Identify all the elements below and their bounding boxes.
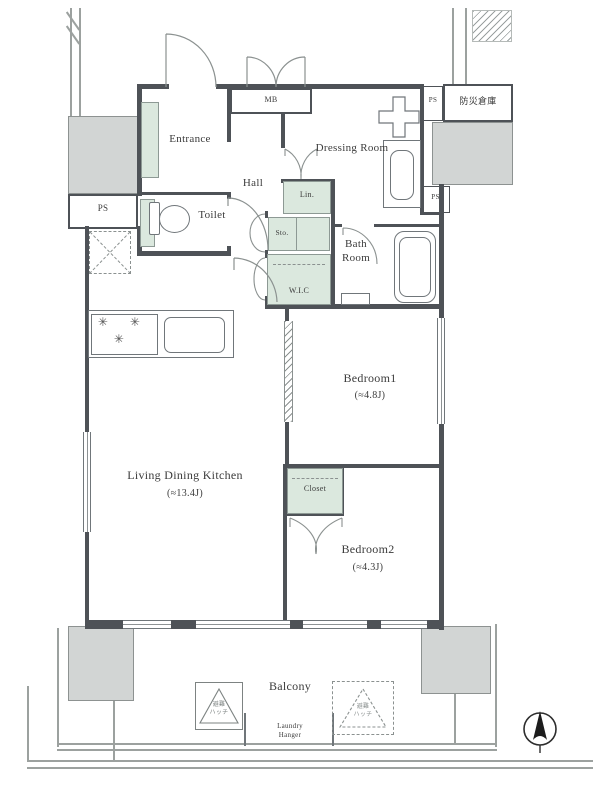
disaster-storage-label: 防災倉庫	[443, 94, 513, 107]
wall	[374, 224, 441, 227]
pillar	[68, 116, 139, 194]
meter-box-label: MB	[230, 95, 312, 104]
pipe-space-label: PS	[421, 193, 450, 201]
laundry-hanger-post	[244, 713, 246, 746]
washing-machine-icon	[390, 150, 414, 200]
wall	[285, 422, 289, 468]
toilet-label: Toilet	[186, 209, 238, 221]
balcony-edge	[495, 624, 497, 747]
entrance-door-arc	[165, 31, 219, 89]
site-boundary	[27, 760, 593, 762]
evacuation-hatch-icon: 避難 ハッチ	[332, 681, 394, 735]
wall-stub	[452, 8, 454, 86]
site-boundary	[27, 767, 593, 769]
window	[381, 620, 427, 629]
ldk-label: Living Dining Kitchen	[103, 468, 267, 483]
window	[83, 432, 91, 532]
balcony-label: Balcony	[248, 679, 332, 694]
bath-room-label: Bath Room	[333, 237, 379, 265]
hanger-rail	[292, 478, 338, 479]
north-arrow-icon	[515, 705, 567, 757]
hanger-rail	[273, 264, 325, 265]
bedroom1-size: (≈4.8J)	[300, 390, 440, 401]
floor-plan: PS PS 防災倉庫 PS MB	[0, 0, 600, 800]
stove-burner-icon: ✳	[128, 315, 142, 330]
wall-stub	[465, 8, 467, 86]
bathtub-icon	[399, 237, 431, 297]
dressing-room-label: Dressing Room	[312, 141, 392, 155]
washbasin-icon	[376, 94, 422, 140]
ldk-door-arc	[232, 256, 278, 302]
hatch-text-line2: ハッチ	[333, 712, 393, 719]
window	[196, 620, 290, 629]
wall-stub	[79, 8, 81, 116]
evacuation-hatch-icon: 避難 ハッチ	[195, 682, 243, 730]
wall-hatch-area	[472, 10, 512, 42]
window	[303, 620, 367, 629]
laundry-hanger-line2: Hanger	[279, 731, 301, 740]
wall	[285, 309, 289, 321]
pipe-space-label: PS	[423, 96, 443, 104]
balcony-rail	[57, 749, 497, 751]
stove-burner-icon: ✳	[96, 315, 110, 330]
balcony-rail	[57, 743, 497, 745]
pipe-space-label: PS	[68, 203, 138, 213]
folding-door-icon	[249, 213, 267, 253]
stove-burner-icon: ✳	[112, 332, 126, 347]
linen-label: Lin.	[283, 190, 331, 199]
wall	[137, 251, 231, 256]
bedroom2-label: Bedroom2	[298, 542, 438, 557]
wall	[334, 224, 342, 227]
storage-label: Sto.	[267, 228, 297, 237]
accordion-door	[284, 321, 293, 422]
closet-label: Closet	[287, 484, 343, 493]
bath-counter	[341, 293, 370, 305]
balcony-divider	[113, 701, 115, 761]
double-door-icon	[246, 54, 306, 88]
ldk-size: (≈13.4J)	[103, 488, 267, 499]
laundry-hanger-label: Laundry Hanger	[249, 722, 331, 740]
wall	[85, 226, 89, 622]
wall-stub	[70, 8, 72, 116]
hall-label: Hall	[235, 177, 271, 189]
pillar	[432, 122, 513, 185]
balcony-edge	[57, 628, 59, 747]
balcony-divider	[454, 694, 456, 744]
bedroom2-size: (≈4.3J)	[298, 562, 438, 573]
entrance-label: Entrance	[155, 133, 225, 145]
window	[123, 620, 171, 629]
bedroom1-label: Bedroom1	[300, 371, 440, 386]
laundry-hanger-line1: Laundry	[277, 722, 303, 731]
pillar	[68, 626, 134, 701]
site-boundary	[27, 686, 29, 762]
wall	[141, 192, 229, 195]
pillar	[421, 626, 491, 694]
refrigerator-space-cross	[89, 231, 131, 274]
hatch-text-line1: 避難	[196, 702, 242, 709]
hatch-text-line2: ハッチ	[196, 710, 242, 717]
hatch-text-line1: 避難	[333, 704, 393, 711]
sink-icon	[164, 317, 225, 353]
wall	[420, 212, 441, 215]
